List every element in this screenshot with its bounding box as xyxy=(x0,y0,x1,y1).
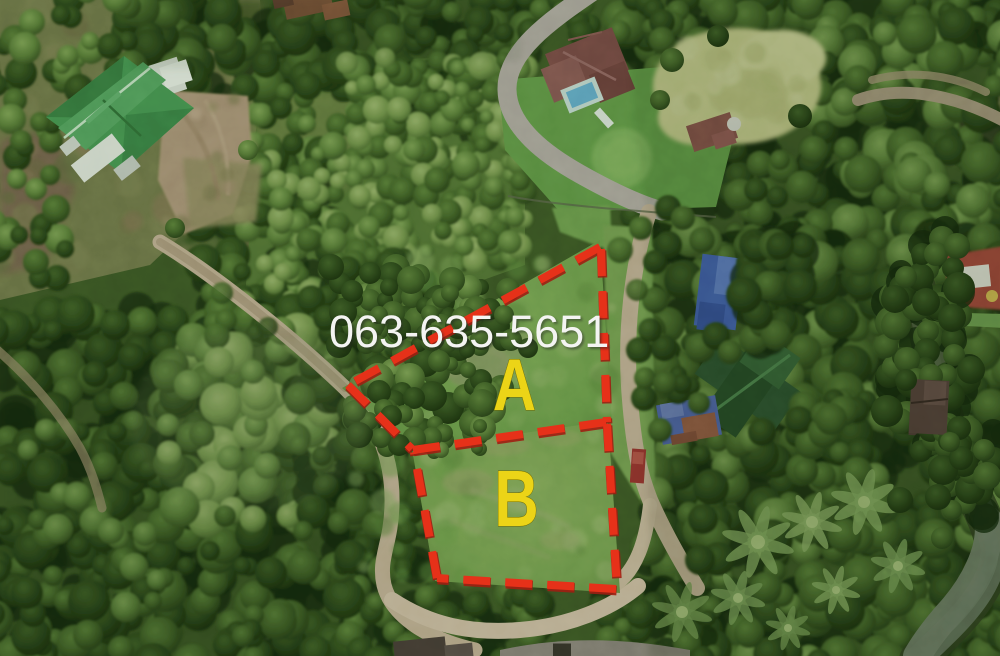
svg-text:063-635-5651: 063-635-5651 xyxy=(329,306,609,357)
svg-text:A: A xyxy=(493,345,536,426)
svg-text:B: B xyxy=(494,454,538,544)
